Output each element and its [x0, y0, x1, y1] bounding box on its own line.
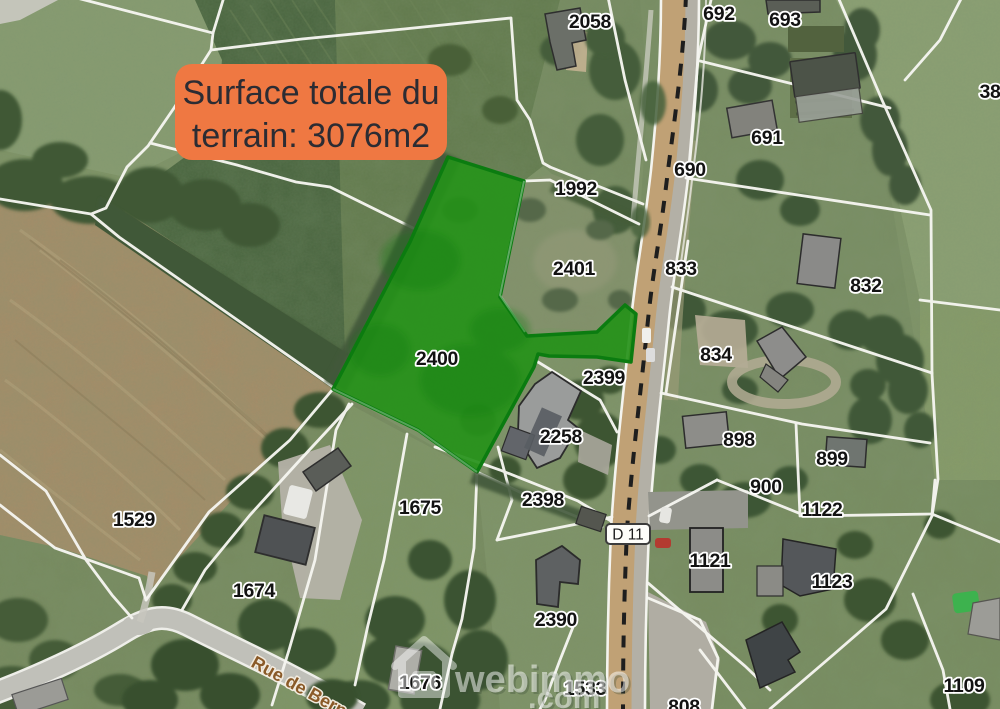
- svg-text:693: 693: [769, 9, 801, 31]
- svg-text:1109: 1109: [943, 675, 985, 697]
- svg-text:1992: 1992: [555, 178, 598, 200]
- svg-text:832: 832: [850, 275, 882, 297]
- svg-text:1529: 1529: [113, 509, 156, 531]
- svg-text:691: 691: [751, 127, 783, 149]
- svg-text:2401: 2401: [553, 258, 596, 280]
- svg-text:2058: 2058: [569, 11, 612, 33]
- svg-text:2390: 2390: [535, 609, 578, 631]
- svg-text:833: 833: [665, 258, 697, 280]
- svg-text:D 11: D 11: [612, 527, 644, 544]
- svg-text:1675: 1675: [399, 497, 442, 519]
- svg-text:692: 692: [703, 3, 735, 25]
- svg-text:834: 834: [700, 344, 732, 366]
- svg-text:1121: 1121: [689, 550, 731, 572]
- svg-text:1122: 1122: [801, 499, 843, 521]
- svg-text:1123: 1123: [811, 571, 853, 593]
- svg-text:690: 690: [674, 159, 706, 181]
- svg-text:1674: 1674: [233, 580, 276, 602]
- svg-text:2398: 2398: [522, 489, 565, 511]
- svg-text:2399: 2399: [583, 367, 626, 389]
- svg-text:899: 899: [816, 448, 848, 470]
- svg-text:2400: 2400: [416, 348, 459, 370]
- svg-text:Surface totale du: Surface totale du: [182, 74, 439, 112]
- svg-text:.com: .com: [528, 680, 600, 709]
- svg-text:808: 808: [668, 696, 700, 709]
- svg-text:2258: 2258: [540, 426, 583, 448]
- svg-text:900: 900: [750, 476, 782, 498]
- svg-text:38: 38: [979, 81, 1000, 103]
- svg-text:898: 898: [723, 429, 755, 451]
- svg-text:terrain: 3076m2: terrain: 3076m2: [192, 117, 430, 155]
